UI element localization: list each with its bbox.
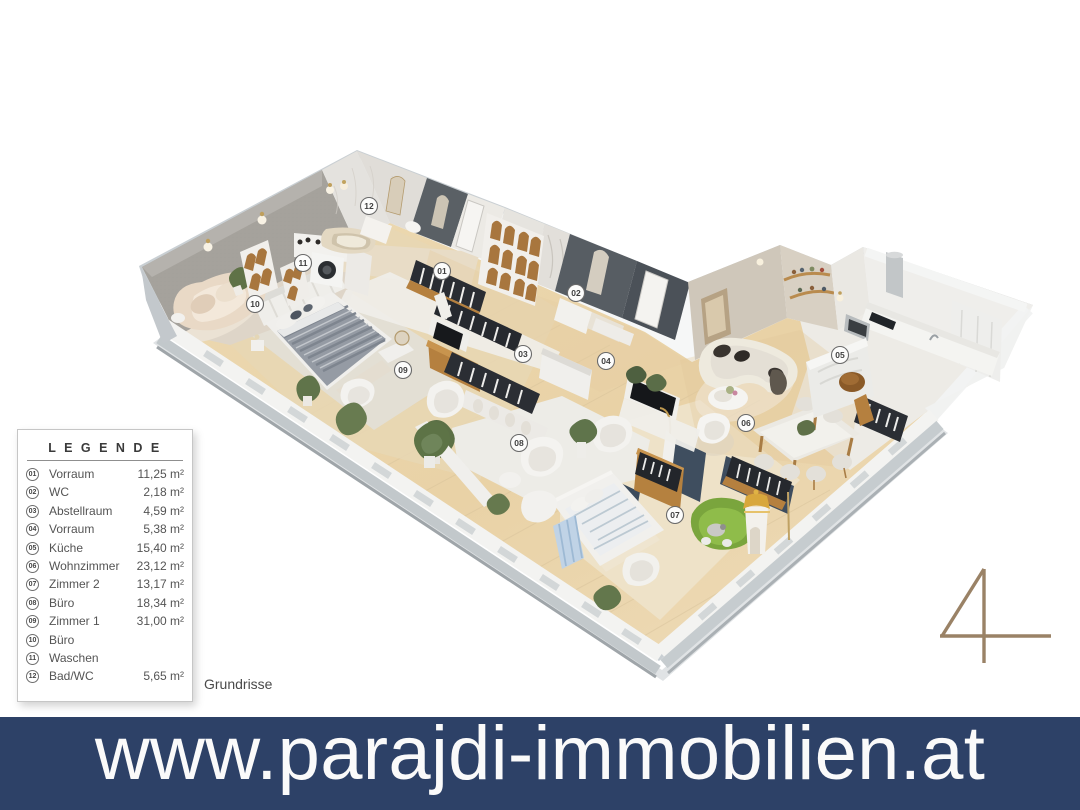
svg-text:04: 04 <box>601 356 611 366</box>
svg-text:05: 05 <box>835 350 845 360</box>
svg-text:08: 08 <box>514 438 524 448</box>
svg-text:03: 03 <box>518 349 528 359</box>
svg-text:02: 02 <box>571 288 581 298</box>
svg-text:10: 10 <box>250 299 260 309</box>
svg-text:12: 12 <box>364 201 374 211</box>
svg-text:01: 01 <box>437 266 447 276</box>
svg-text:06: 06 <box>741 418 751 428</box>
svg-text:07: 07 <box>670 510 680 520</box>
svg-text:09: 09 <box>398 365 408 375</box>
svg-text:11: 11 <box>299 258 308 268</box>
